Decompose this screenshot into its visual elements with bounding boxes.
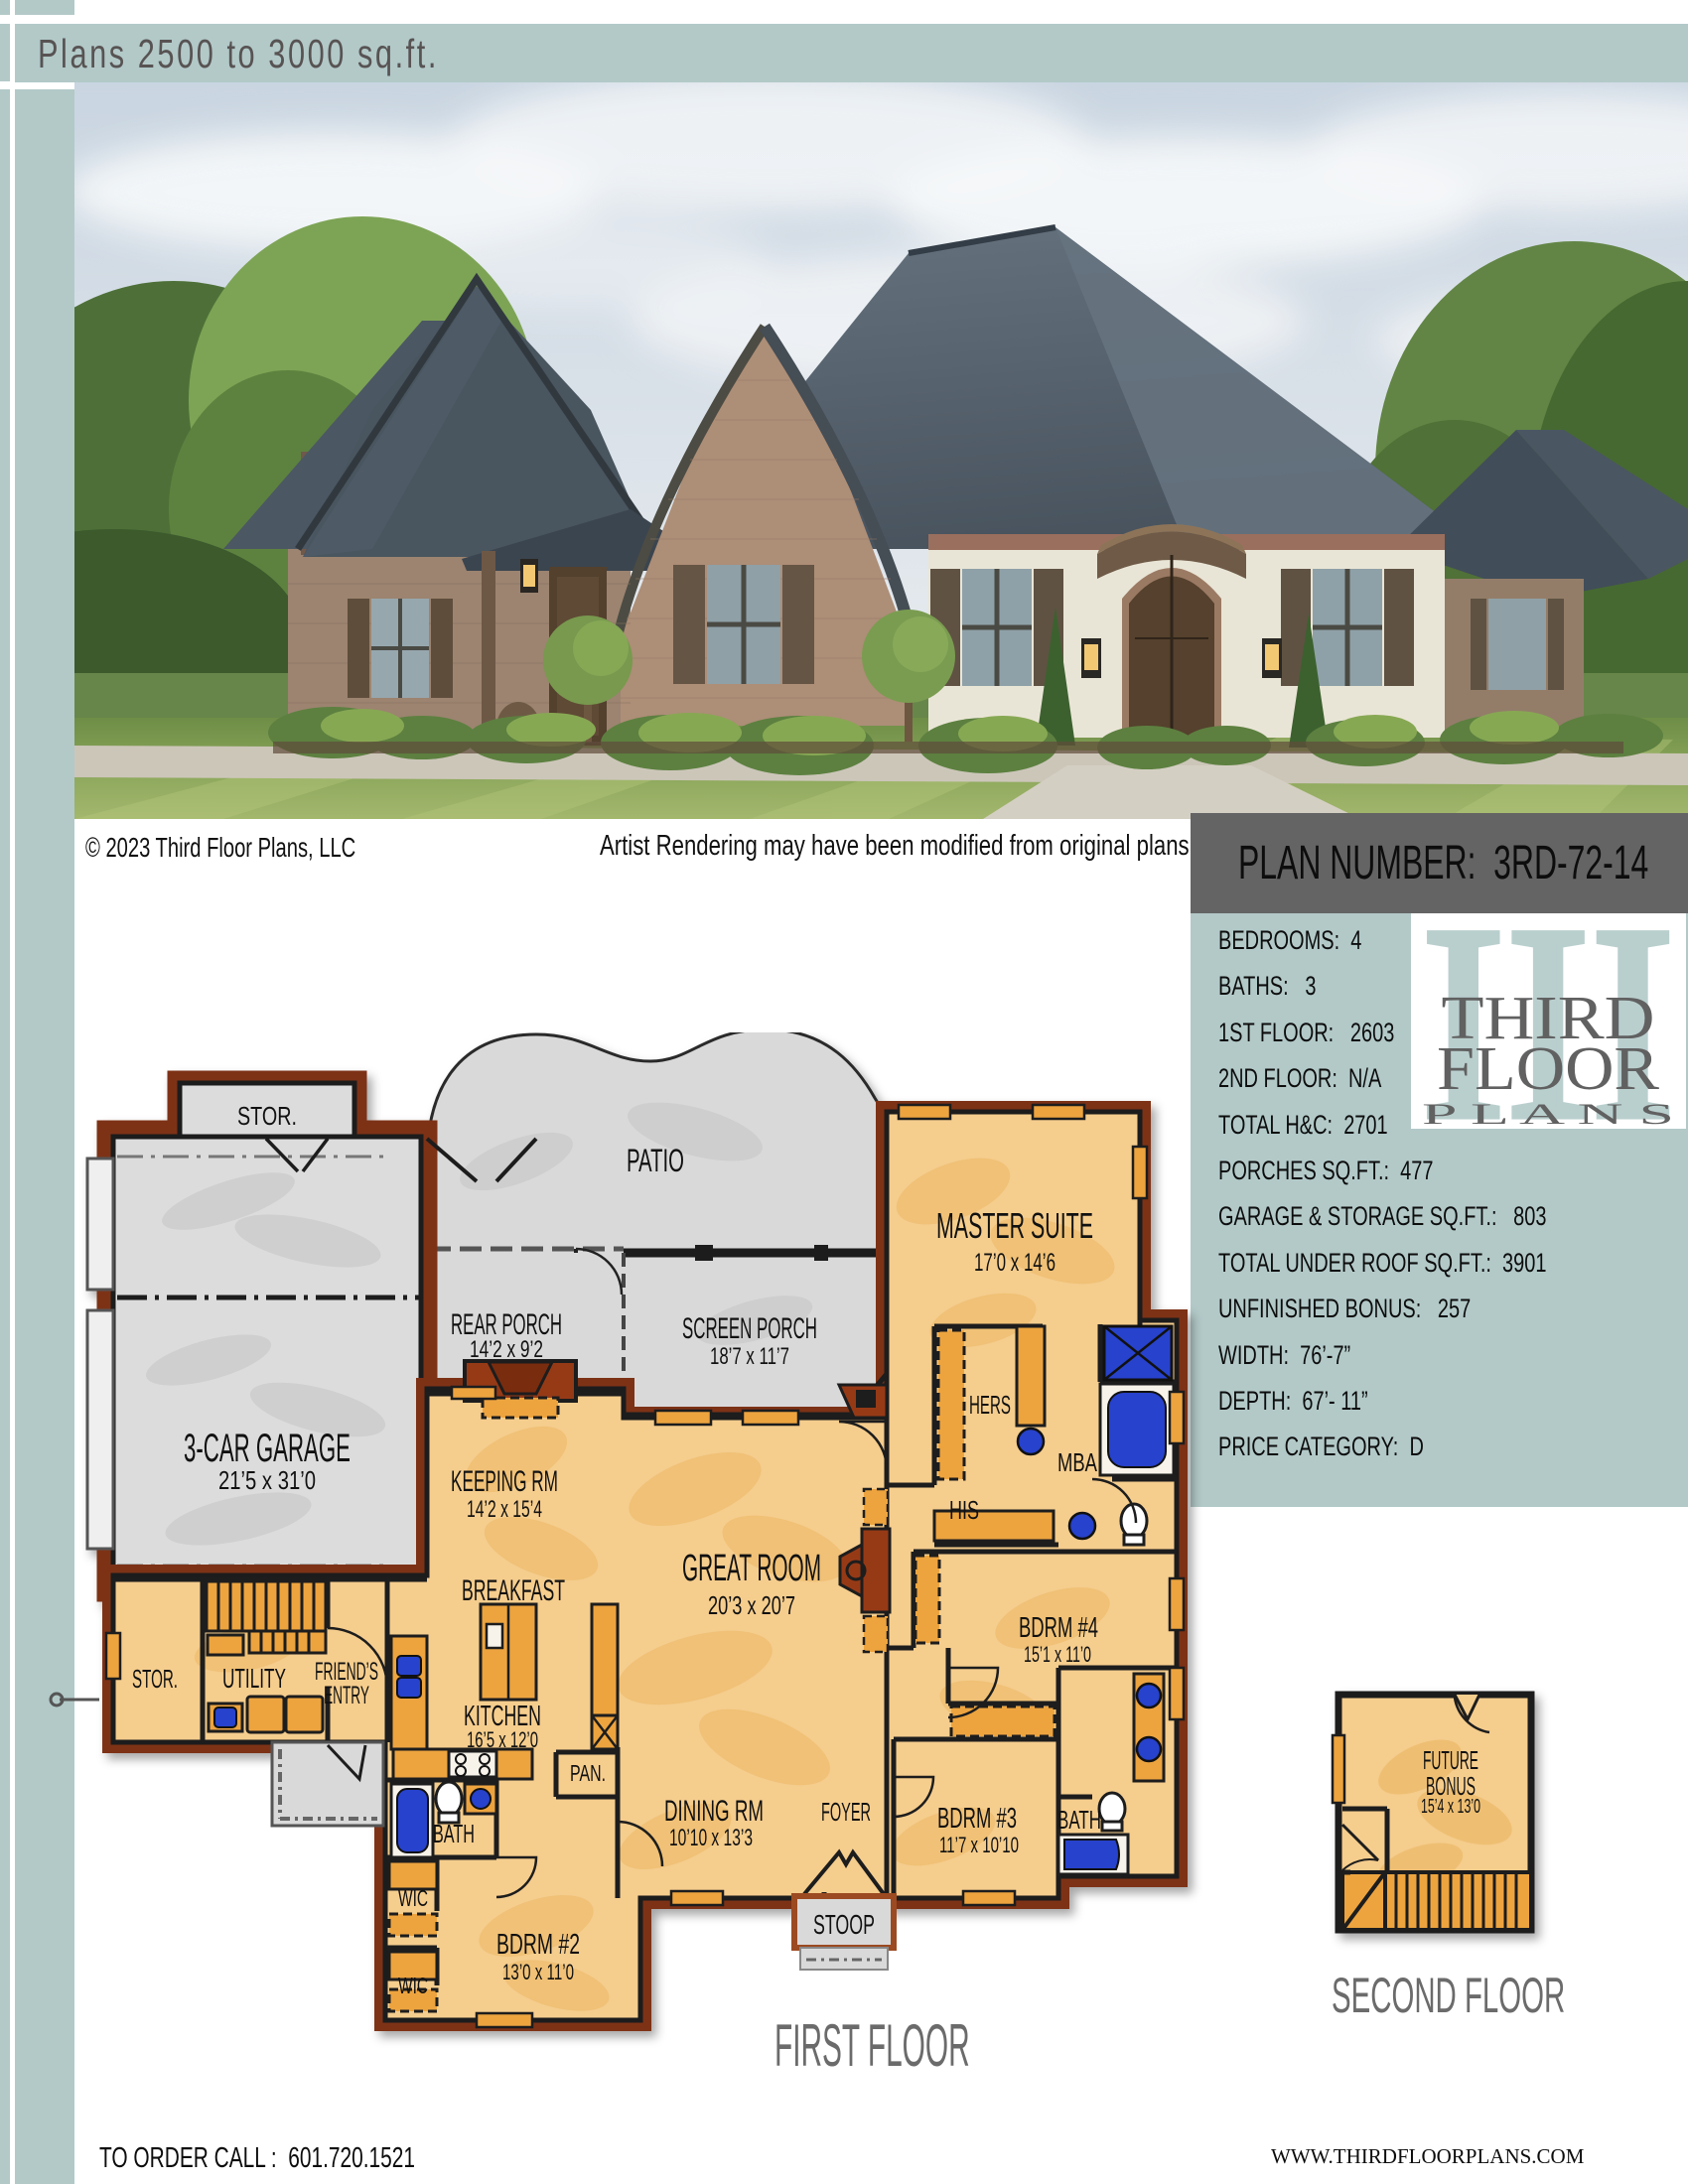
svg-text:BDRM #3: BDRM #3 [937, 1803, 1017, 1835]
svg-text:GREAT ROOM: GREAT ROOM [682, 1548, 821, 1589]
svg-text:14’2 x 9’2: 14’2 x 9’2 [470, 1336, 543, 1363]
svg-text:BDRM #4: BDRM #4 [1019, 1612, 1098, 1644]
svg-text:HERS: HERS [969, 1390, 1011, 1420]
svg-text:17’0 x 14’6: 17’0 x 14’6 [974, 1249, 1055, 1277]
svg-text:15’1 x 11’0: 15’1 x 11’0 [1024, 1642, 1091, 1667]
svg-text:MBA: MBA [1057, 1447, 1097, 1477]
svg-text:11’7 x 10’10: 11’7 x 10’10 [939, 1833, 1019, 1857]
svg-text:STOR.: STOR. [237, 1101, 297, 1131]
svg-text:20’3 x 20’7: 20’3 x 20’7 [708, 1590, 795, 1620]
svg-text:13’0 x 11’0: 13’0 x 11’0 [502, 1960, 574, 1984]
svg-text:SCREEN PORCH: SCREEN PORCH [682, 1312, 817, 1345]
svg-text:HIS: HIS [949, 1495, 979, 1525]
svg-text:BREAKFAST: BREAKFAST [462, 1574, 565, 1607]
svg-text:3-CAR GARAGE: 3-CAR GARAGE [184, 1427, 351, 1470]
svg-text:ENTRY: ENTRY [324, 1682, 369, 1709]
svg-text:UTILITY: UTILITY [222, 1663, 286, 1694]
svg-text:14’2 x 15’4: 14’2 x 15’4 [467, 1496, 542, 1523]
svg-text:BDRM #2: BDRM #2 [496, 1929, 580, 1961]
svg-text:18’7 x 11’7: 18’7 x 11’7 [710, 1343, 789, 1370]
svg-text:MASTER SUITE: MASTER SUITE [936, 1205, 1093, 1246]
svg-text:STOOP: STOOP [813, 1909, 875, 1940]
svg-text:BATH: BATH [1057, 1805, 1101, 1835]
svg-text:FOYER: FOYER [821, 1797, 871, 1827]
svg-text:PATIO: PATIO [627, 1143, 684, 1178]
svg-text:15’4 x 13’0: 15’4 x 13’0 [1421, 1796, 1480, 1818]
svg-text:10’10 x 13’3: 10’10 x 13’3 [669, 1825, 753, 1851]
svg-text:BATH: BATH [433, 1819, 475, 1848]
svg-text:STOR.: STOR. [132, 1664, 178, 1694]
svg-text:WIC: WIC [398, 1885, 428, 1911]
svg-text:16’5 x 12’0: 16’5 x 12’0 [467, 1727, 538, 1752]
svg-text:DINING RM: DINING RM [664, 1795, 764, 1828]
svg-text:PAN.: PAN. [570, 1760, 606, 1786]
svg-text:KEEPING RM: KEEPING RM [451, 1465, 558, 1498]
svg-text:21’5 x 31’0: 21’5 x 31’0 [218, 1465, 316, 1495]
svg-text:WIC: WIC [398, 1973, 428, 1998]
